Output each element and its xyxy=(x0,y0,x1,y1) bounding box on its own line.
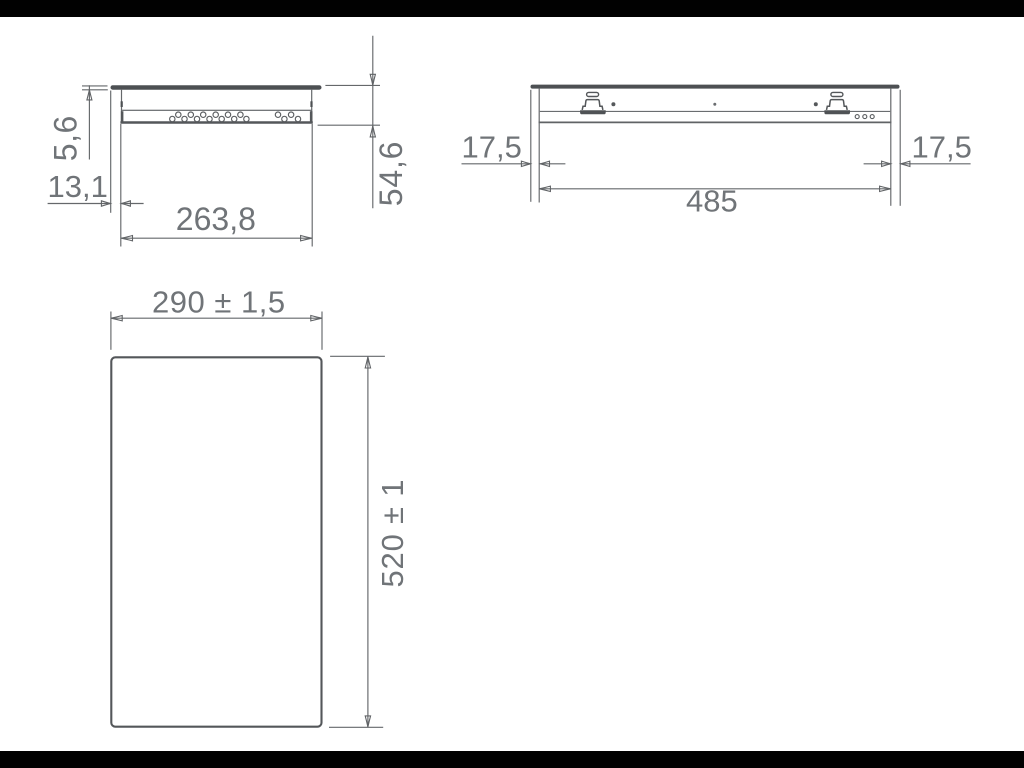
svg-text:17,5: 17,5 xyxy=(462,130,522,165)
svg-text:520 ± 1: 520 ± 1 xyxy=(375,479,410,588)
svg-text:54,6: 54,6 xyxy=(373,141,409,206)
svg-text:290 ± 1,5: 290 ± 1,5 xyxy=(152,284,286,319)
svg-text:17,5: 17,5 xyxy=(912,130,972,165)
svg-text:263,8: 263,8 xyxy=(176,201,256,237)
svg-text:485: 485 xyxy=(686,183,738,218)
svg-text:13,1: 13,1 xyxy=(48,169,108,204)
svg-text:5,6: 5,6 xyxy=(48,115,84,161)
